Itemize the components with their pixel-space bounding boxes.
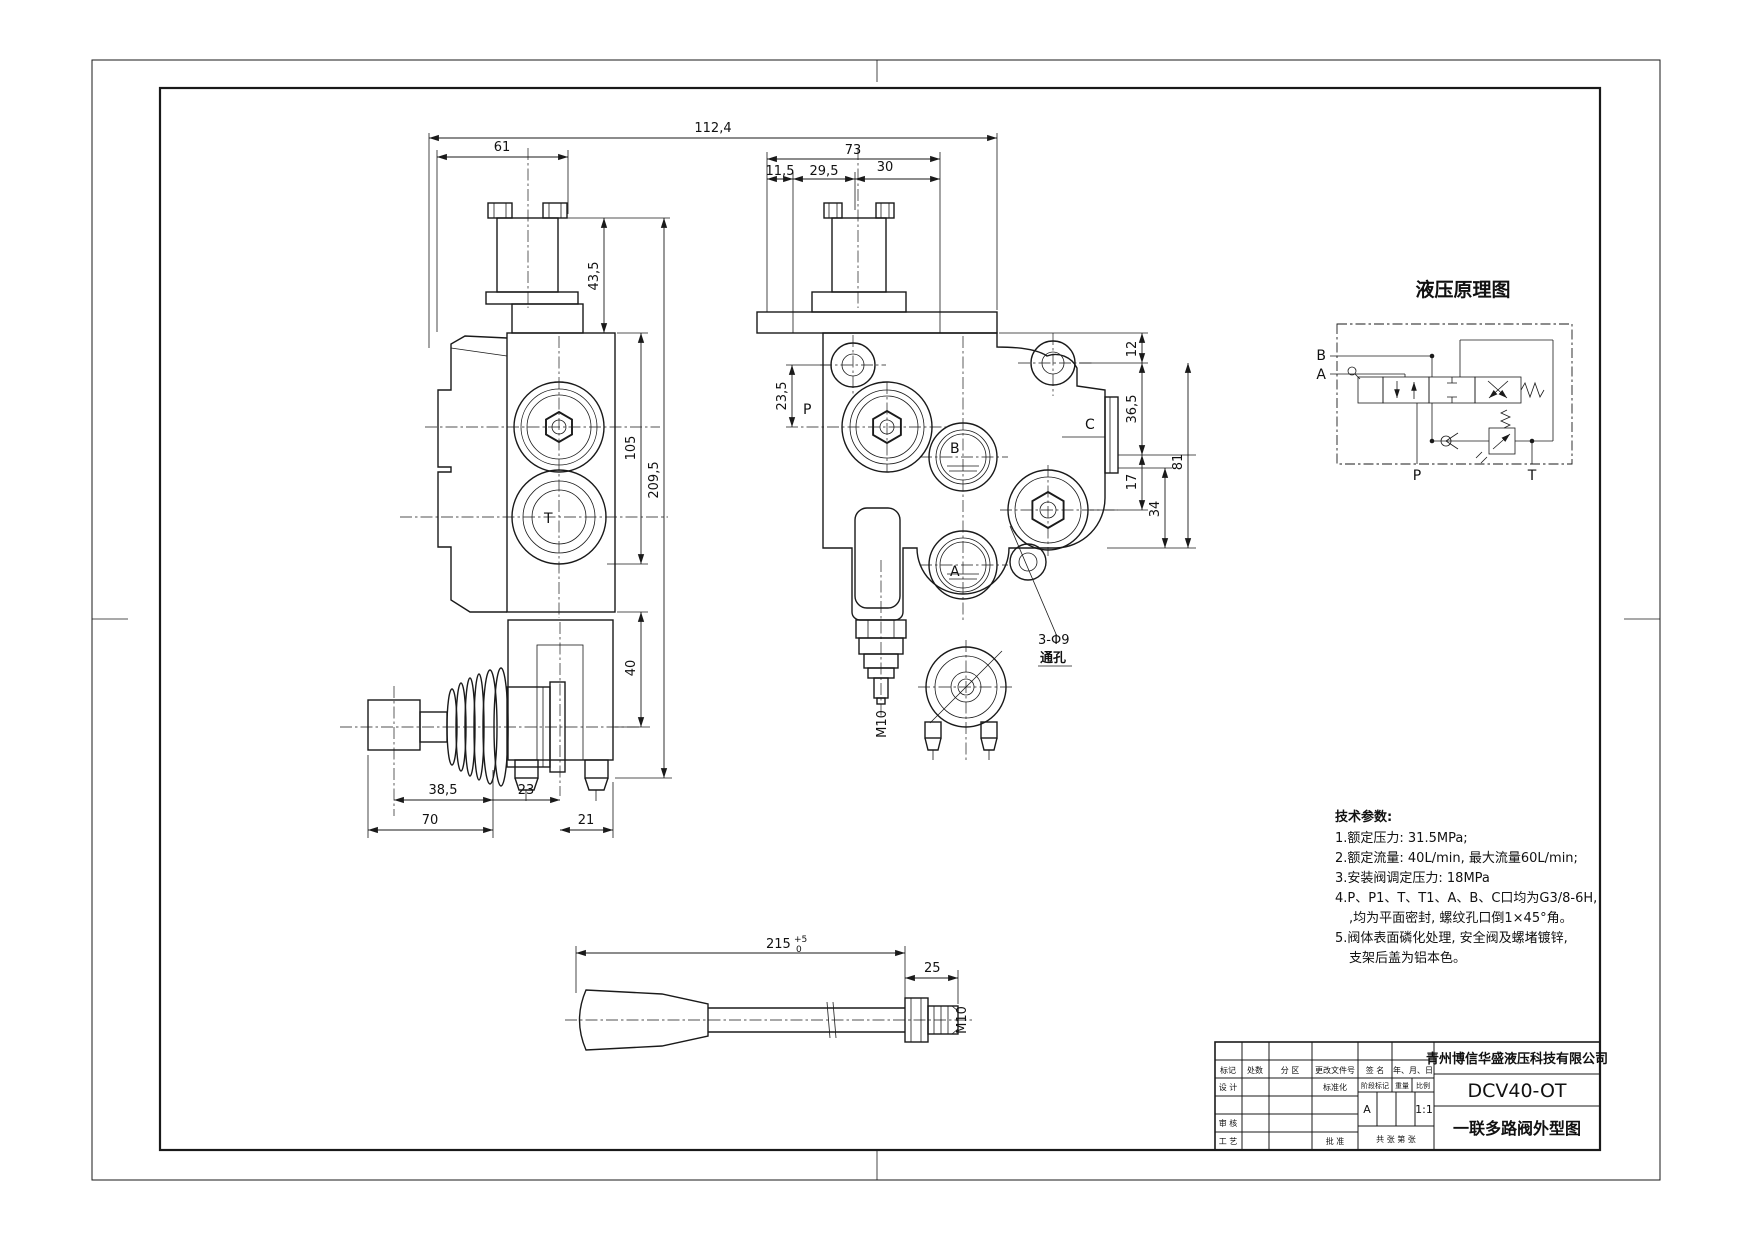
dim-23: 23 [518, 783, 535, 798]
dim-38-5: 38,5 [429, 783, 458, 798]
tech-param-line: 1.额定压力: 31.5MPa; [1335, 831, 1468, 846]
schematic-title: 液压原理图 [1415, 278, 1510, 301]
dim-17: 17 [1125, 474, 1140, 491]
title-block: 标记 处数 分 区 更改文件号 签 名 年、月、日 设 计 标准化 审 核 工 … [1215, 1042, 1608, 1150]
front-thread-m10: M10 [875, 710, 890, 738]
dim-30: 30 [877, 160, 894, 175]
dim-61: 61 [494, 140, 511, 155]
cad-sheet: T [0, 0, 1754, 1240]
tech-param-line: 4.P、P1、T、T1、A、B、C口均为G3/8-6H, [1335, 891, 1597, 906]
tech-params: 技术参数: 1.额定压力: 31.5MPa; 2.额定流量: 40L/min, … [1335, 809, 1597, 966]
tb-rev-zone: 分 区 [1281, 1066, 1300, 1075]
tb-part-number: DCV40-OT [1467, 1080, 1566, 1102]
front-spool-cap [832, 218, 886, 292]
front-view-dimensions: 73 11,5 29,5 30 23,5 12 36,5 17 34 81 [766, 143, 1196, 548]
tb-rev-sign: 签 名 [1366, 1065, 1385, 1075]
dim-43-5: 43,5 [587, 262, 602, 291]
drawing-canvas: T [0, 0, 1754, 1240]
side-view-dimensions: 112,4 61 43,5 105 40 209,5 38,5 23 70 21 [368, 121, 997, 838]
tech-params-heading: 技术参数: [1335, 809, 1392, 825]
dim-215: 215 [766, 937, 791, 952]
dim-29-5: 29,5 [810, 164, 839, 179]
dim-215-tol-bot: 0 [796, 945, 802, 955]
holes-callout: 3-Φ9 [1038, 633, 1069, 648]
dim-70: 70 [422, 813, 439, 828]
handle-detail: 215 +5 0 25 M10 [565, 935, 972, 1050]
tb-rev-count: 处数 [1247, 1065, 1263, 1075]
hydraulic-schematic: 液压原理图 B A [1316, 278, 1572, 484]
dim-21: 21 [578, 813, 595, 828]
schematic-port-a: A [1316, 367, 1326, 383]
side-cap-bolt-right [543, 203, 567, 218]
dim-25: 25 [924, 961, 941, 976]
tb-company: 青州博信华盛液压科技有限公司 [1426, 1051, 1608, 1067]
dim-105: 105 [624, 436, 639, 461]
tech-param-line: 5.阀体表面磷化处理, 安全阀及螺堵镀锌, [1335, 930, 1568, 946]
tb-design: 设 计 [1219, 1082, 1238, 1092]
tb-rev-file: 更改文件号 [1315, 1065, 1355, 1075]
dim-215-tol-top: +5 [794, 935, 807, 945]
tb-sheets: 共 张 第 张 [1376, 1134, 1416, 1144]
dim-12: 12 [1125, 341, 1140, 358]
tb-weight-label: 重量 [1395, 1082, 1409, 1090]
tb-stage-mark: A [1363, 1103, 1371, 1116]
front-view: B A C [757, 148, 1118, 762]
dim-36-5: 36,5 [1125, 395, 1140, 424]
side-view: T [340, 148, 668, 816]
dim-209-5: 209,5 [647, 461, 662, 498]
side-cap-bolt-left [488, 203, 512, 218]
port-a-label: A [950, 564, 960, 580]
front-lever-mount [925, 647, 1006, 760]
port-b-label: B [950, 441, 960, 457]
front-valve-body [823, 333, 1105, 620]
tb-scale-label: 比例 [1416, 1081, 1430, 1090]
tech-param-line: ,均为平面密封, 螺纹孔口倒1×45°角。 [1349, 910, 1573, 926]
dim-23-5: 23,5 [775, 382, 790, 411]
tb-stage-label: 阶段标记 [1361, 1081, 1389, 1090]
dim-40: 40 [624, 660, 639, 677]
front-port-c-tab [1105, 397, 1118, 473]
side-spool-cap [497, 218, 558, 292]
dim-81: 81 [1171, 454, 1186, 471]
schematic-port-b: B [1316, 348, 1326, 364]
tb-standardize: 标准化 [1323, 1082, 1347, 1092]
handle-thread-m10: M10 [955, 1006, 970, 1034]
tech-param-line: 3.安装阀调定压力: 18MPa [1335, 871, 1490, 886]
tb-rev-mark: 标记 [1220, 1065, 1236, 1075]
tb-approve: 批 准 [1326, 1136, 1345, 1146]
schematic-port-t: T [1527, 468, 1537, 484]
tb-review: 审 核 [1219, 1118, 1238, 1128]
side-bracket [508, 620, 613, 760]
tb-drawing-title: 一联多路阀外型图 [1453, 1119, 1581, 1138]
holes-callout-2: 通孔 [1040, 650, 1066, 666]
schematic-port-p: P [1413, 468, 1421, 484]
dim-34: 34 [1148, 501, 1163, 518]
port-t-label: T [543, 511, 553, 527]
dim-73: 73 [845, 143, 862, 158]
tb-craft: 工 艺 [1219, 1137, 1238, 1146]
tech-param-line: 支架后盖为铝本色。 [1349, 950, 1466, 966]
dim-112-4: 112,4 [694, 121, 731, 136]
relief-valve-symbol [1476, 410, 1553, 463]
port-p-label: P [803, 402, 811, 418]
tech-param-line: 2.额定流量: 40L/min, 最大流量60L/min; [1335, 851, 1578, 866]
dim-11-5: 11,5 [766, 164, 795, 179]
tb-scale-value: 1:1 [1415, 1103, 1433, 1116]
directional-valve-symbol [1348, 367, 1544, 403]
port-c-label: C [1085, 417, 1095, 433]
